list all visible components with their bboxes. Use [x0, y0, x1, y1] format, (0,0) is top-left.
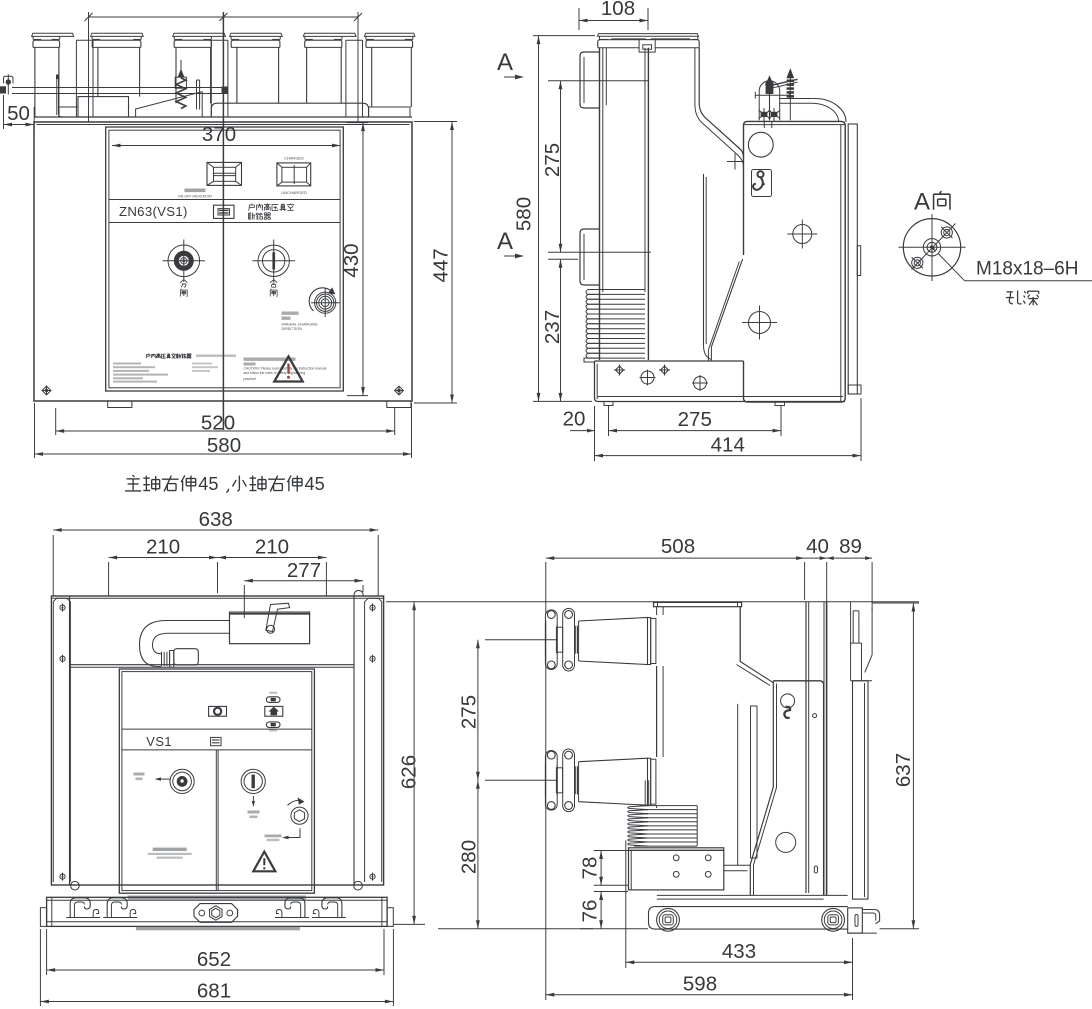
- svg-text:210: 210: [146, 536, 180, 559]
- svg-text:414: 414: [711, 434, 745, 457]
- svg-text:ON OFF INDICATOR: ON OFF INDICATOR: [178, 195, 212, 199]
- svg-text:580: 580: [513, 197, 536, 231]
- svg-text:A: A: [497, 49, 513, 76]
- svg-text:A: A: [497, 228, 513, 255]
- svg-text:CAUTION: Please read carefully: CAUTION: Please read carefully the instr…: [244, 367, 327, 371]
- svg-text:275: 275: [678, 408, 712, 431]
- svg-text:50: 50: [7, 102, 30, 125]
- svg-text:20: 20: [563, 408, 586, 431]
- svg-text:598: 598: [683, 973, 717, 996]
- svg-text:430: 430: [340, 243, 363, 277]
- svg-text:508: 508: [661, 535, 695, 558]
- svg-text:237: 237: [541, 310, 564, 344]
- svg-text:M18x18–6H: M18x18–6H: [976, 259, 1078, 280]
- svg-text:210: 210: [255, 536, 289, 559]
- svg-text:108: 108: [601, 0, 635, 20]
- svg-text:626: 626: [398, 755, 421, 789]
- svg-text:DIRECTION: DIRECTION: [282, 327, 303, 331]
- svg-text:MANUAL CHARGING: MANUAL CHARGING: [282, 322, 318, 326]
- svg-text:CHARGED: CHARGED: [284, 155, 304, 160]
- svg-text:89: 89: [839, 535, 862, 558]
- svg-text:78: 78: [579, 857, 602, 880]
- svg-text:637: 637: [892, 753, 915, 787]
- svg-text:280: 280: [458, 840, 481, 874]
- svg-text:76: 76: [579, 900, 602, 923]
- svg-text:277: 277: [287, 559, 321, 582]
- svg-text:370: 370: [202, 123, 236, 146]
- svg-text:ZN63(VS1): ZN63(VS1): [119, 204, 188, 219]
- svg-text:UNCHARGED: UNCHARGED: [281, 190, 307, 195]
- svg-text:A: A: [914, 189, 930, 216]
- svg-text:45: 45: [305, 474, 325, 494]
- svg-text:practice!: practice!: [244, 377, 257, 381]
- svg-text:447: 447: [430, 248, 453, 282]
- svg-text:652: 652: [197, 948, 231, 971]
- svg-text:40: 40: [806, 535, 829, 558]
- svg-text:275: 275: [541, 143, 564, 177]
- svg-text:275: 275: [458, 695, 481, 729]
- svg-text:638: 638: [199, 508, 233, 531]
- svg-text:580: 580: [207, 434, 241, 457]
- svg-text:433: 433: [722, 940, 756, 963]
- svg-text:681: 681: [197, 980, 231, 1003]
- svg-text:VS1: VS1: [146, 734, 172, 749]
- svg-text:45: 45: [198, 474, 218, 494]
- svg-text:520: 520: [201, 412, 235, 435]
